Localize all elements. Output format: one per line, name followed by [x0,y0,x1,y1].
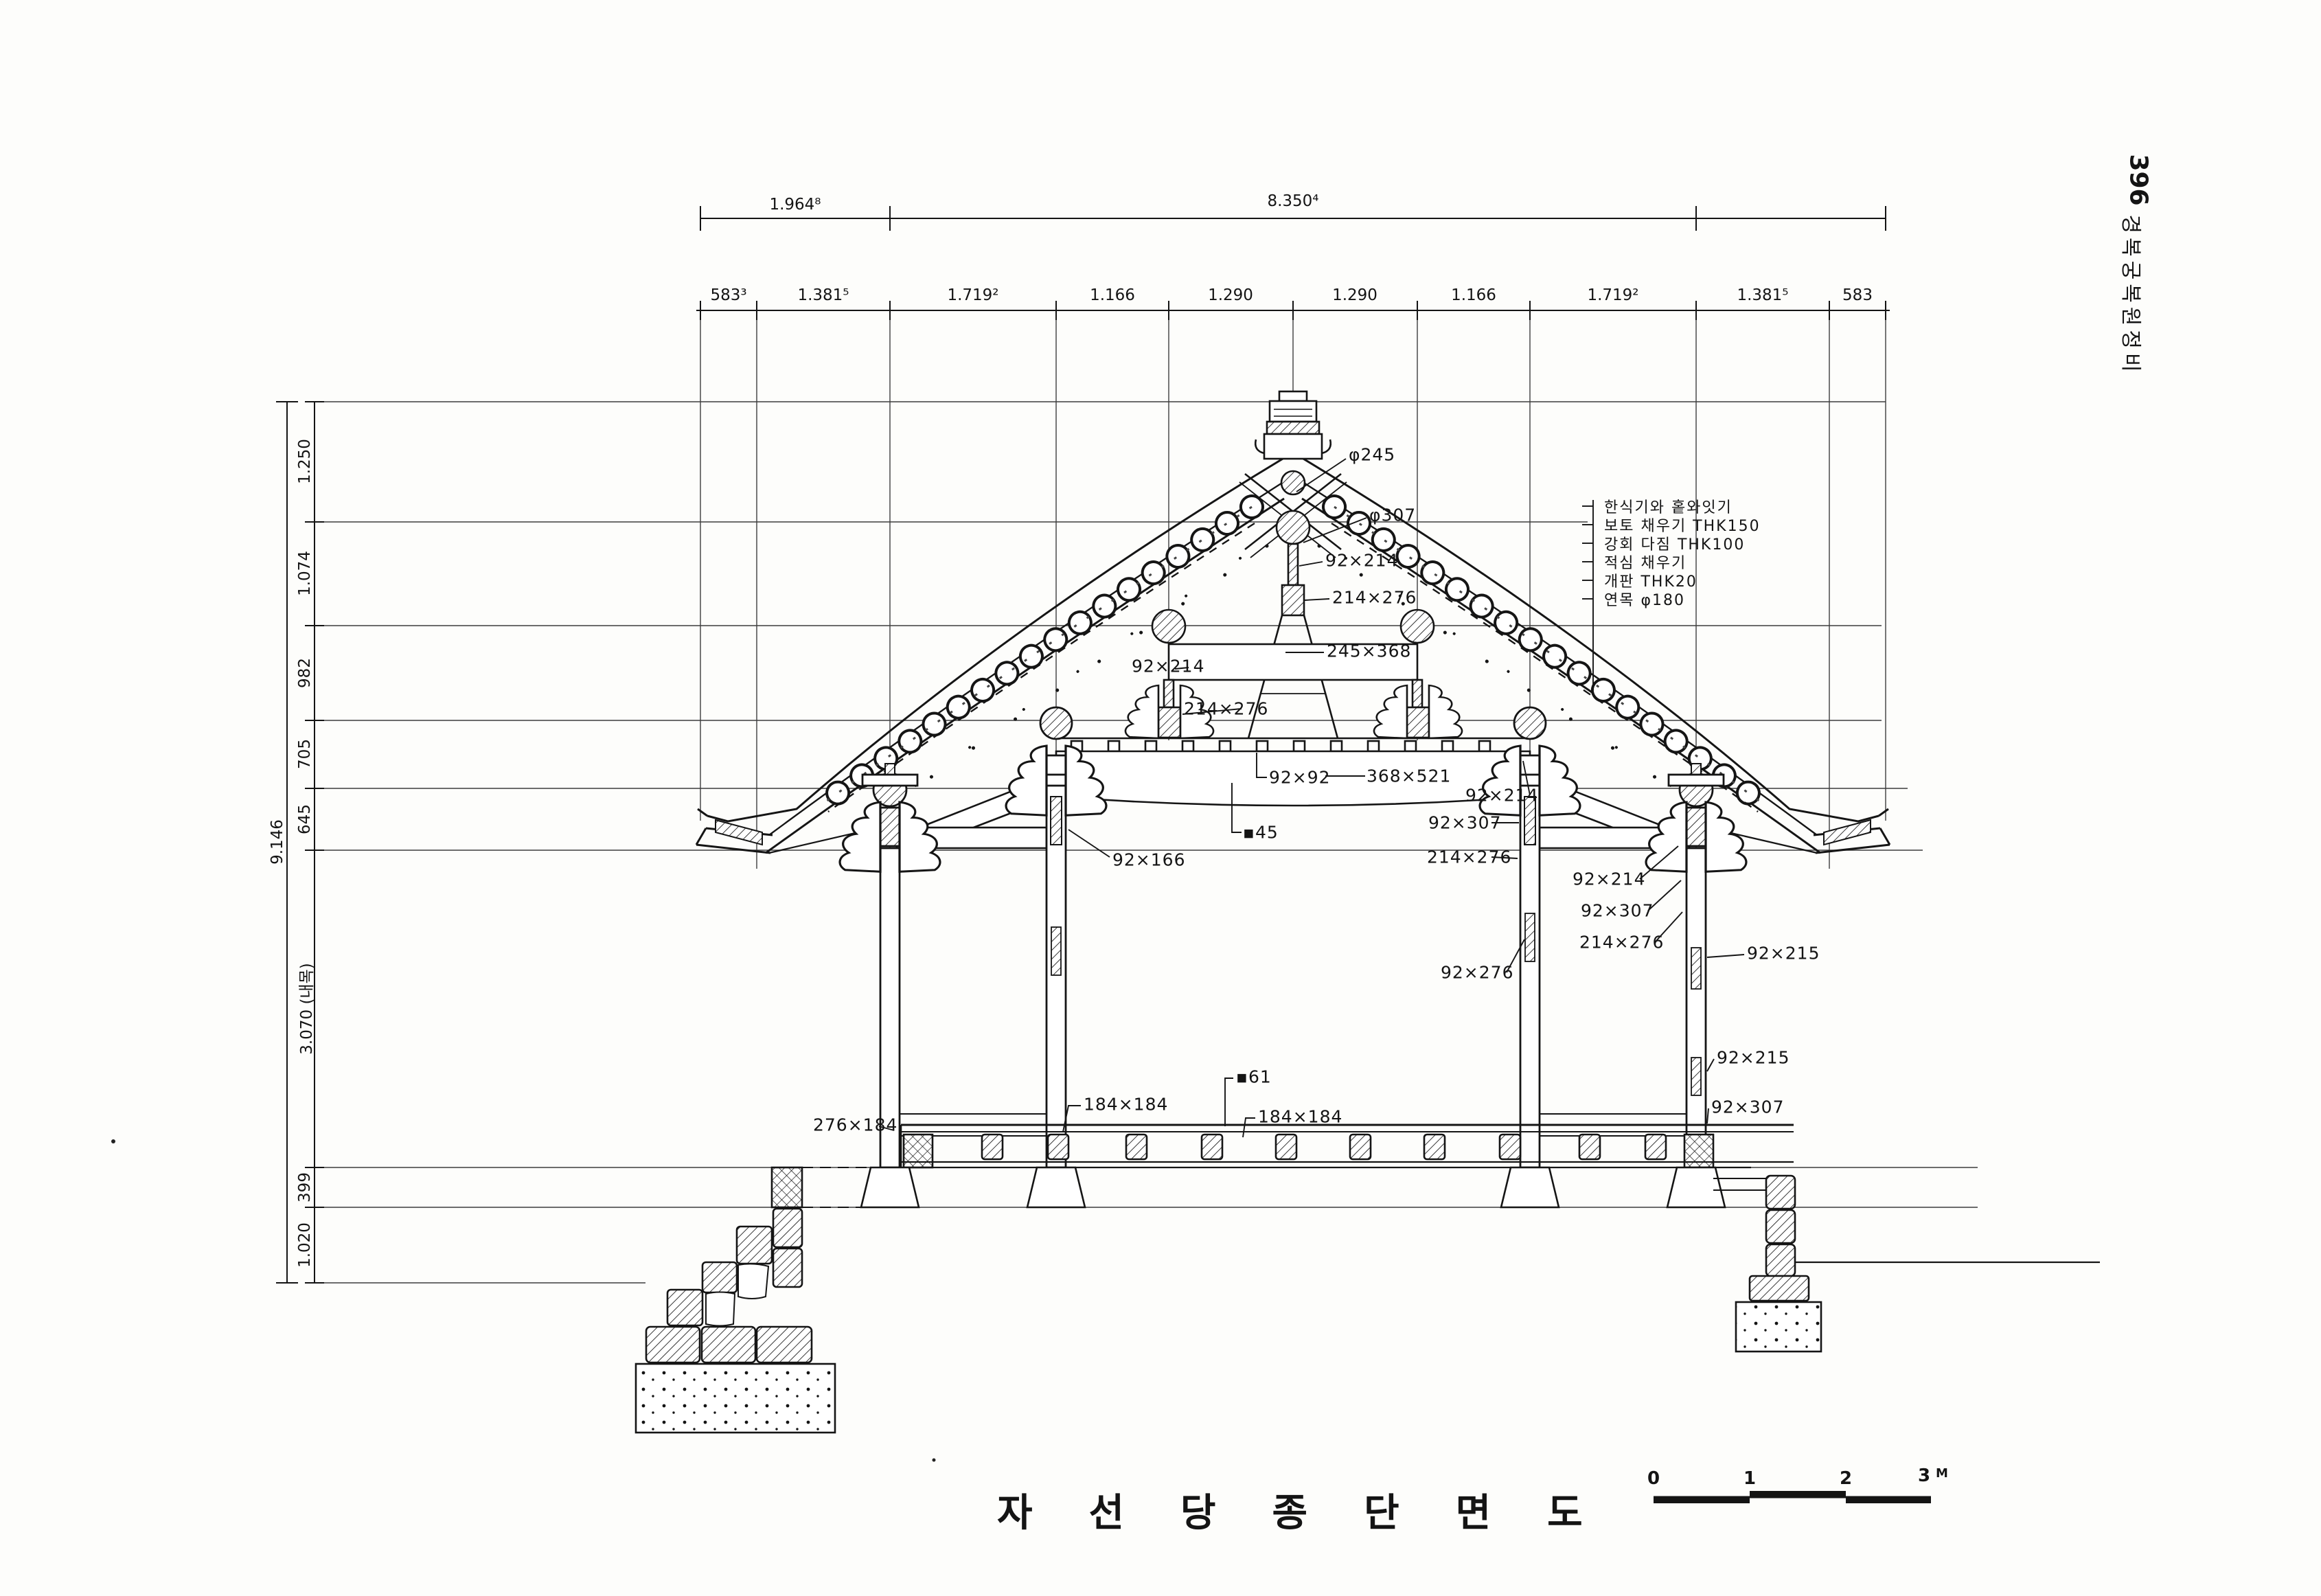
dim-top-major-0: 1.964⁸ [769,196,821,214]
dim-left-1: 1.074 [296,551,314,596]
scan-speck [933,1459,936,1462]
member-label: 92×214 [1573,869,1645,889]
dim-top-major-1: 8.350⁴ [1267,192,1318,210]
scale-tick-1: 1 [1743,1468,1756,1489]
dim-top-minor-9: 583 [1842,286,1873,304]
member-label: 276×184 [813,1115,897,1135]
scale-tick-3: 3 [1918,1466,1930,1486]
floor-foundation [636,1125,2100,1433]
drawing-title: 자선당종단면도 [997,1482,1639,1538]
scale-unit: M [1936,1466,1948,1481]
member-label: 92×307 [1428,813,1501,833]
member-label: 214×276 [1579,933,1664,953]
member-label: 92×92 [1269,768,1331,788]
dim-left-7: 1.020 [296,1222,314,1268]
member-label: ▪61 [1236,1067,1272,1087]
dim-left-5: 3.070 (내목) [293,963,317,1054]
dim-top-minor-6: 1.166 [1451,286,1496,304]
dim-top-minor-8: 1.381⁵ [1737,286,1788,304]
member-label: 92×214 [1325,551,1398,571]
member-label: ▪45 [1243,823,1279,843]
member-label: 368×521 [1367,766,1451,786]
member-label: 92×215 [1747,944,1820,964]
member-label-dia307: φ307 [1369,505,1416,525]
member-label: 245×368 [1327,641,1411,661]
scale-tick-0: 0 [1647,1468,1660,1489]
dim-left-0: 1.250 [296,439,314,484]
dim-left-3: 705 [296,739,314,769]
roof-layer-note-5: 연목 φ180 [1604,588,1685,610]
dim-top-minor-5: 1.290 [1332,286,1377,304]
member-label-dia245: φ245 [1349,445,1395,465]
dim-top-minor-0: 583³ [710,286,746,304]
member-label: 92×214 [1132,657,1204,676]
dim-top-minor-4: 1.290 [1208,286,1253,304]
scale-bar [1654,1491,1931,1503]
dim-top-minor-7: 1.719² [1587,286,1638,304]
dim-left-total: 9.146 [268,819,286,865]
dim-top-minor-3: 1.166 [1090,286,1135,304]
member-label: 92×276 [1441,963,1513,983]
member-label: 92×214 [1465,786,1538,806]
page-number: 396 [2125,154,2153,205]
member-label: 184×184 [1084,1095,1168,1115]
member-label: 214×276 [1184,699,1268,719]
dim-left-2: 982 [296,658,314,688]
binding-title: 경복궁복원정비 [2118,214,2148,376]
dim-top-minor-1: 1.381⁵ [797,286,849,304]
dim-left-4: 645 [296,804,314,834]
member-label: 214×276 [1427,847,1511,867]
member-label: 92×166 [1112,850,1185,870]
scan-speck [111,1139,115,1143]
dim-top-minor-2: 1.719² [947,286,998,304]
member-label: 92×307 [1581,901,1654,921]
member-label: 92×215 [1717,1048,1790,1068]
member-label: 214×276 [1332,588,1417,608]
drawing-sheet: 1.964⁸ 8.350⁴ 583³ 1.381⁵ 1.719² 1.166 1… [0,0,2321,1596]
dim-left-6: 399 [296,1172,314,1202]
member-label: 92×307 [1711,1097,1784,1117]
scale-tick-2: 2 [1840,1468,1852,1489]
section-linework [0,0,2321,1596]
member-label: 184×184 [1258,1107,1342,1127]
